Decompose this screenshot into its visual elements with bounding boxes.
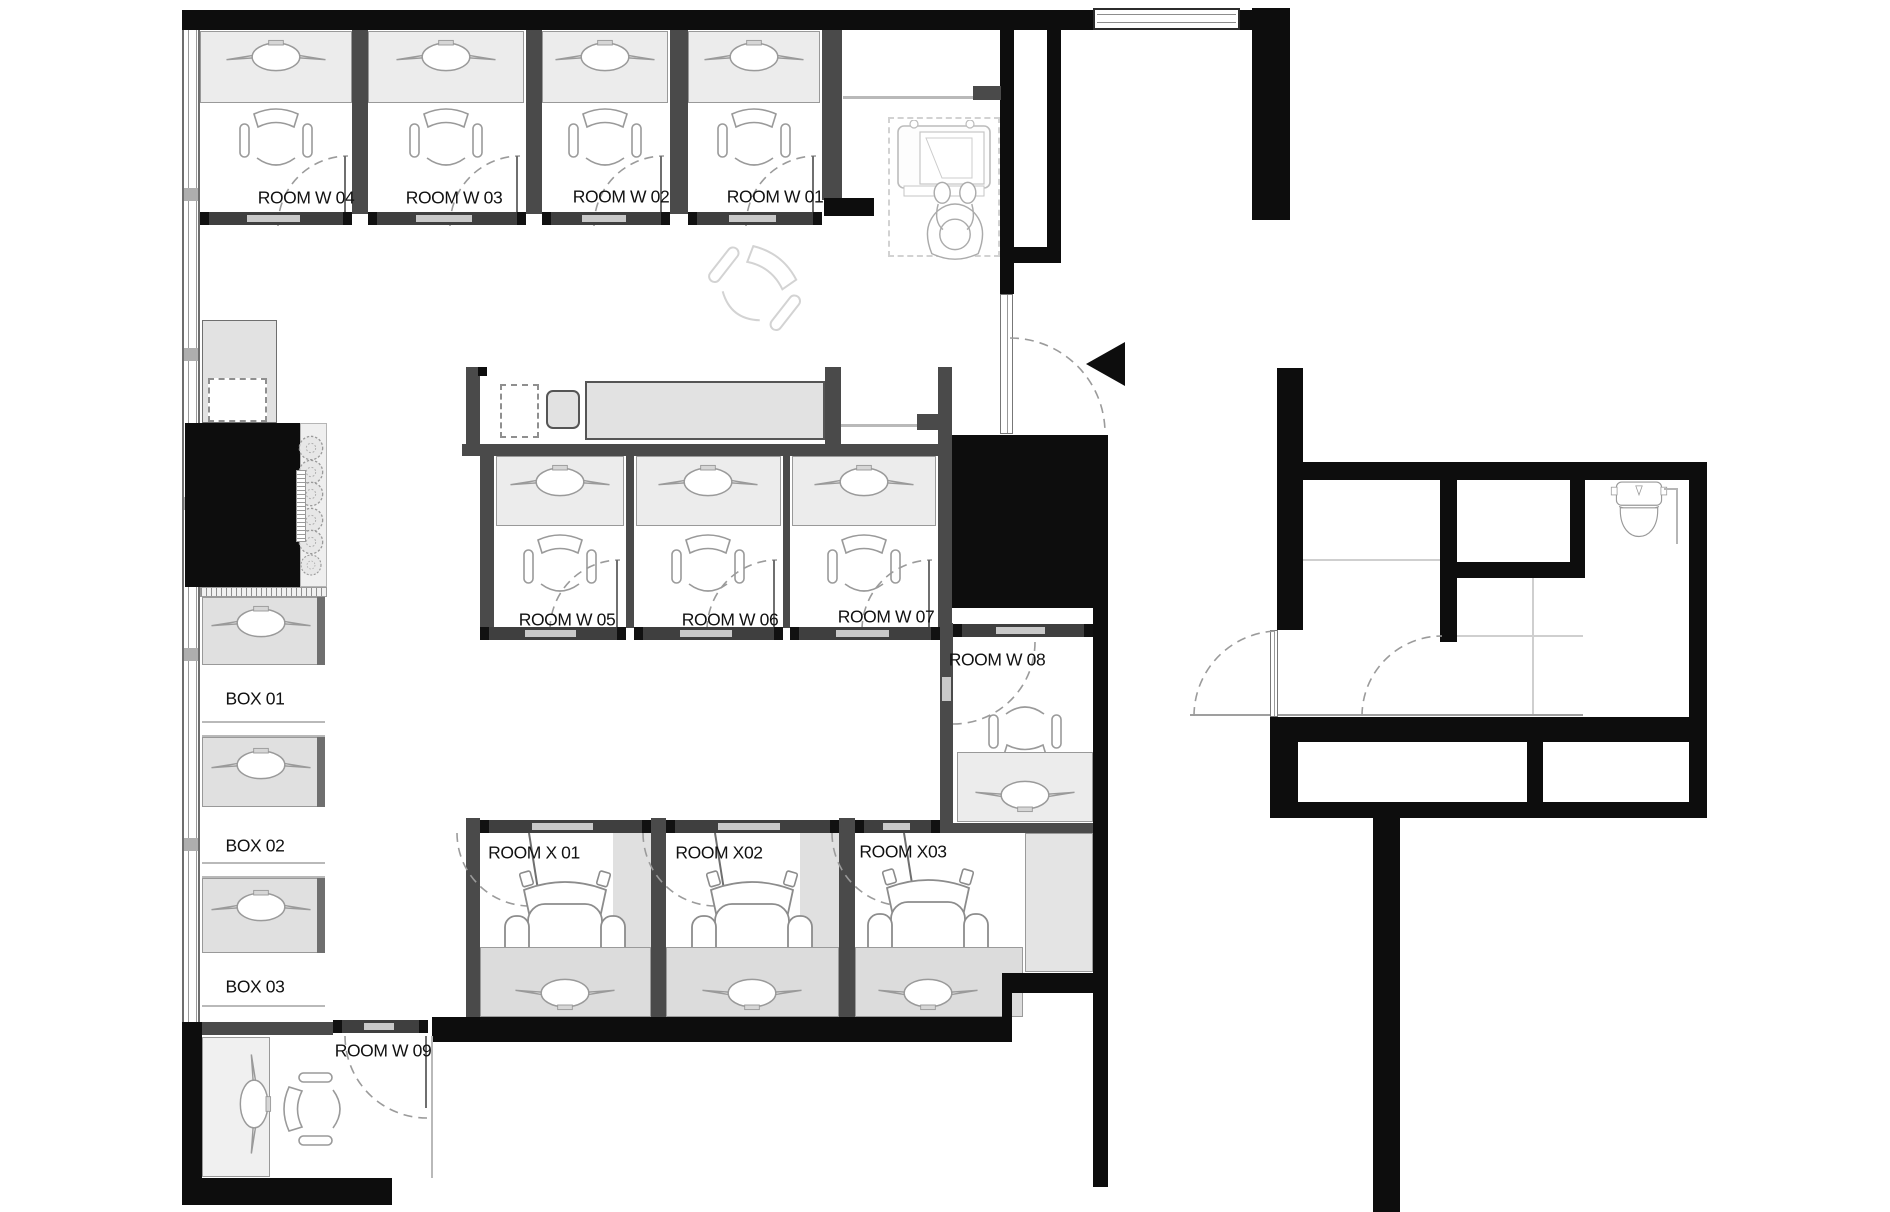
- room-w04-label: ROOM W 04: [258, 189, 355, 207]
- box-partition: [202, 862, 325, 864]
- room-x03-label: ROOM X03: [859, 843, 946, 861]
- rb-mat-line-v: [1532, 578, 1534, 714]
- counter-end: [973, 86, 1001, 100]
- monitor-icon: [873, 968, 983, 1020]
- room-w01-label: ROOM W 01: [727, 188, 824, 206]
- monitor-icon: [809, 455, 919, 507]
- rb-wall-v1: [1440, 480, 1457, 642]
- stub-cap: [478, 367, 487, 376]
- monitor-icon: [697, 968, 807, 1020]
- window-connector: [184, 838, 198, 851]
- rb-wall-right: [1689, 462, 1707, 818]
- rb-bed-line: [1303, 559, 1440, 561]
- monitor-icon: [206, 738, 316, 790]
- room-x01-label: ROOM X 01: [488, 844, 580, 862]
- sliding-door-track: [953, 624, 1093, 637]
- sliding-door-track: [333, 1020, 428, 1033]
- wall-w09-bottom: [182, 1178, 392, 1205]
- box-03-label: BOX 03: [226, 978, 285, 996]
- room-x02-label: ROOM X02: [675, 844, 762, 862]
- monitor-icon: [391, 30, 501, 82]
- counter-end-panel: [825, 367, 841, 444]
- sliding-door-track: [542, 212, 670, 225]
- wall-step-horizontal: [1002, 973, 1108, 993]
- wall-top-right-pier: [1252, 8, 1290, 220]
- partition-w03-w02: [526, 30, 542, 214]
- storage-counter: [1025, 833, 1093, 972]
- wall-right-long: [1093, 608, 1108, 1187]
- window-mullion: [1097, 14, 1236, 23]
- rb-divider: [1527, 742, 1543, 804]
- box-partition: [202, 721, 325, 723]
- box-partition: [202, 1005, 325, 1007]
- sliding-door-track: [790, 627, 940, 640]
- box-desk-edge: [317, 878, 325, 953]
- monitor-icon: [505, 455, 615, 507]
- wall-bottom-x: [432, 1017, 1012, 1042]
- rb-descending-wall: [1373, 818, 1400, 1212]
- monitor-icon: [229, 1049, 281, 1159]
- room-w06-label: ROOM W 06: [682, 611, 779, 629]
- room-w07-label: ROOM W 07: [838, 608, 935, 626]
- shaft-cap: [1012, 247, 1061, 263]
- box-02-label: BOX 02: [226, 837, 285, 855]
- box-01-label: BOX 01: [226, 690, 285, 708]
- stray-chair: [679, 219, 825, 365]
- room-w05-label: ROOM W 05: [519, 611, 616, 629]
- monitor-icon: [206, 596, 316, 648]
- person-icon: [916, 180, 994, 260]
- monitor-icon: [550, 30, 660, 82]
- toilet-icon: [1610, 474, 1668, 570]
- wall-w01-foot: [824, 198, 874, 216]
- window-connector: [184, 188, 198, 201]
- wall-w07-right: [938, 367, 952, 628]
- monitor-icon: [970, 770, 1080, 822]
- rb-spine: [1277, 368, 1303, 630]
- counter-stub-left: [466, 367, 480, 444]
- monitor-icon: [510, 968, 620, 1020]
- planter-ledger: [296, 470, 306, 542]
- partition-w05-w06: [626, 456, 634, 628]
- counter-line: [841, 424, 917, 427]
- wall-w05-left: [480, 456, 494, 628]
- monitor-icon: [653, 455, 763, 507]
- monitor-icon: [206, 880, 316, 932]
- wall-w01-right: [822, 30, 842, 200]
- room-w02-label: ROOM W 02: [573, 188, 670, 206]
- shaft-wall-right: [1047, 28, 1061, 247]
- door-leaf: [616, 560, 618, 628]
- toilet-pipe: [1676, 488, 1678, 544]
- door-arc: [1360, 634, 1442, 716]
- plant-icon: [299, 553, 323, 577]
- partition-w06-w07: [783, 456, 790, 628]
- rb-wall-v2: [1570, 480, 1585, 575]
- rb-mat-line-h: [1457, 635, 1583, 637]
- w09-right-line: [431, 1036, 433, 1178]
- wall-w09-top: [202, 1022, 333, 1035]
- rb-wall-bottom: [1270, 802, 1707, 818]
- rb-band-top: [1270, 717, 1707, 742]
- monitor-icon: [699, 30, 809, 82]
- center-counter: [585, 381, 825, 440]
- door-arc: [1192, 629, 1279, 716]
- wall-top: [182, 10, 1093, 30]
- room-w03-label: ROOM W 03: [406, 189, 503, 207]
- box-desk-edge: [317, 737, 325, 807]
- side-table: [546, 390, 580, 429]
- box-desk-edge: [317, 597, 325, 665]
- room-w08-label: ROOM W 08: [949, 651, 1046, 669]
- core-block: [952, 435, 1108, 608]
- sliding-door-track: [200, 212, 352, 225]
- equipment-dashed: [500, 384, 539, 438]
- window-top: [1093, 8, 1240, 30]
- entrance-arrow-icon: [1086, 342, 1125, 386]
- left-service-block: [185, 423, 300, 587]
- wall-w08-left-door: [942, 677, 951, 701]
- counter-block: [917, 414, 940, 430]
- appliance-dashed: [208, 378, 267, 422]
- sliding-door-track: [688, 212, 822, 225]
- counter-line: [843, 96, 975, 99]
- chair-icon: [277, 1067, 351, 1151]
- floor-plan: ROOM W 04 ROOM W 03 ROOM W 02 ROOM W 01: [0, 0, 1890, 1212]
- window-connector: [184, 348, 198, 361]
- rb-wall-h1: [1457, 562, 1585, 578]
- wall-w08-bottom: [930, 823, 1093, 833]
- window-connector: [184, 648, 198, 661]
- partition-w02-w01: [670, 30, 688, 214]
- sliding-door-track: [368, 212, 526, 225]
- room-w09-label: ROOM W 09: [335, 1042, 432, 1060]
- monitor-icon: [221, 30, 331, 82]
